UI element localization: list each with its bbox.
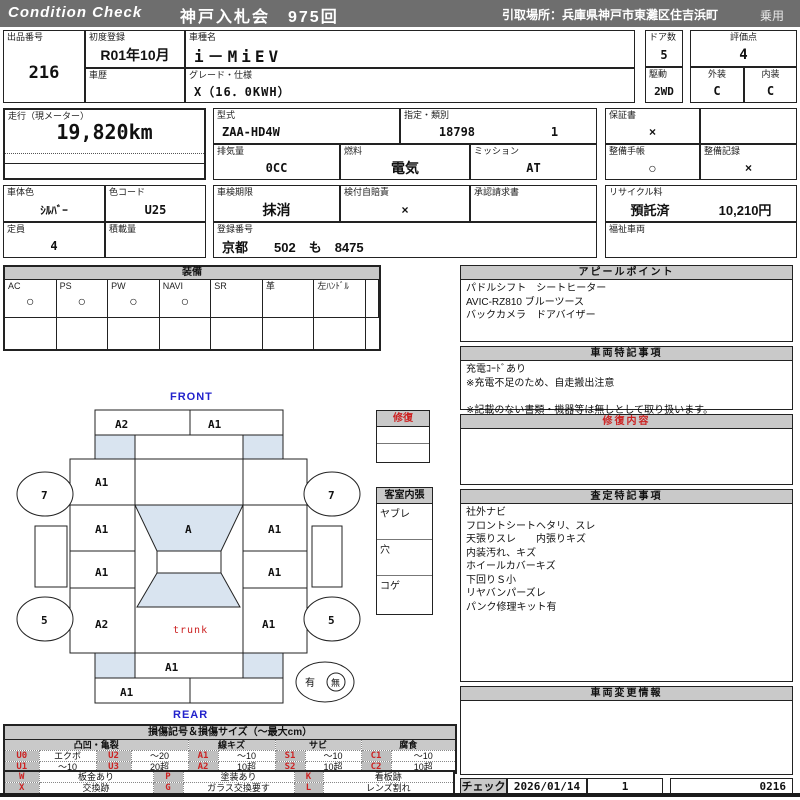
transmission-value: AT — [471, 157, 596, 179]
exterior-grade-cell: 外装 C — [690, 67, 744, 103]
check-count-cell: 1 — [587, 778, 663, 794]
equipment-cell-sr: SR — [211, 280, 263, 318]
appeal-points-text: パドルシフト シートヒーター AVIC-RZ810 ブルーツース バックカメラ … — [461, 280, 792, 341]
maintenance-record-value: × — [701, 157, 796, 179]
equipment-label: NAVI — [160, 280, 211, 292]
legend-desc: 塗装あり — [183, 771, 294, 783]
equipment-title: 装備 — [5, 267, 379, 280]
registration-number-value: 京都 502 も 8475 — [214, 235, 596, 257]
drive-value: 2WD — [646, 80, 682, 102]
appeal-points-panel: アピールポイント パドルシフト シートヒーター AVIC-RZ810 ブルーツー… — [460, 265, 793, 342]
interior-grade-label: 内装 — [745, 68, 796, 80]
legend-code: P — [153, 771, 183, 783]
first-registration-value: R01年10月 — [86, 43, 184, 67]
class-sub-number: 1 — [551, 125, 558, 139]
recycle-fee-cell: リサイクル料 預託済 10,210円 — [605, 185, 797, 222]
registration-number-cell: 登録番号 京都 502 も 8475 — [213, 222, 597, 258]
repair-detail-panel: 修復内容 — [460, 414, 793, 485]
equipment-cell-extra — [366, 280, 379, 318]
zone-label-rear-bumper-left: A1 — [120, 686, 134, 699]
legend-desc: 板金あり — [39, 771, 153, 783]
legend-code: C1 — [361, 751, 391, 762]
equipment-value: ○ — [5, 292, 56, 310]
zone-label-windshield: A — [185, 523, 192, 536]
blank-cell — [700, 108, 797, 144]
brand-logo: Condition Check — [8, 4, 142, 21]
load-capacity-cell: 積載量 — [105, 222, 206, 258]
mileage-cell: 走行（現メーター） 19,820km — [3, 108, 206, 180]
check-label-cell: チェック — [460, 778, 507, 794]
exterior-grade-label: 外装 — [691, 68, 743, 80]
appeal-points-title: アピールポイント — [461, 266, 792, 280]
zone-label-left-fender: A1 — [95, 476, 109, 489]
legend-title: 損傷記号＆損傷サイズ（～最大cm） — [4, 725, 456, 740]
model-name-cell: 車種名 i－MiEV — [185, 30, 635, 68]
capacity-value: 4 — [4, 235, 104, 257]
equipment-cell-lhd: 左ﾊﾝﾄﾞﾙ — [314, 280, 366, 318]
wheel-grade-rear-left: 5 — [41, 614, 48, 627]
model-name-value: i－MiEV — [186, 43, 634, 67]
use-type: 乗用 — [760, 7, 784, 24]
transmission-label: ミッション — [471, 145, 596, 157]
warranty-label: 保証書 — [606, 109, 699, 121]
grade-value: X（16．0KWH） — [186, 81, 634, 102]
model-code-value: ZAA-HD4W — [214, 121, 399, 143]
drive-label: 駆動 — [646, 68, 682, 80]
change-info-panel: 車両変更情報 — [460, 686, 793, 775]
wheel-grade-rear-right: 5 — [328, 614, 335, 627]
transmission-cell: ミッション AT — [470, 144, 597, 180]
legend-desc: ～10 — [218, 751, 275, 762]
rear-panel-zone — [135, 653, 243, 678]
insurance-cell: 検付自賠責 × — [340, 185, 470, 222]
score-value: 4 — [691, 43, 796, 66]
model-code-label: 型式 — [214, 109, 399, 121]
zone-label-left-quarter: A2 — [95, 618, 108, 631]
capacity-label: 定員 — [4, 223, 104, 235]
equipment-cell-ac: AC ○ — [5, 280, 57, 318]
load-capacity-label: 積載量 — [106, 223, 205, 235]
auction-title: 神戸入札会 975回 — [180, 3, 339, 27]
repair-detail-title: 修復内容 — [461, 415, 792, 429]
zone-label-right-front-door: A1 — [268, 523, 282, 536]
vehicle-notes-title: 車両特記事項 — [461, 347, 792, 361]
lot-number-cell: 出品番号 216 — [3, 30, 85, 103]
lot-number-label: 出品番号 — [4, 31, 84, 43]
registration-number-label: 登録番号 — [214, 223, 596, 235]
warranty-cell: 保証書 × — [605, 108, 700, 144]
check-date-cell: 2026/01/14 — [507, 778, 587, 794]
warranty-value: × — [606, 121, 699, 143]
spare-present-label: 有 — [305, 676, 315, 689]
hood-corner-left — [95, 435, 135, 459]
displacement-label: 排気量 — [214, 145, 339, 157]
rear-corner-right — [243, 653, 283, 678]
legend-desc: エクボ — [39, 751, 96, 762]
legend-group-dents: 凸凹・亀裂 — [4, 740, 188, 751]
left-sill-strip — [35, 526, 67, 587]
legend-code: S1 — [275, 751, 305, 762]
recycle-status: 預託済 — [631, 200, 670, 219]
color-code-label: 色コード — [106, 186, 205, 198]
rear-corner-left — [95, 653, 135, 678]
car-history-cell: 車歴 — [85, 68, 185, 103]
maintenance-record-cell: 整備記録 × — [700, 144, 797, 180]
legend-desc: ～20 — [131, 751, 188, 762]
equipment-cell-leather: 革 — [263, 280, 315, 318]
grade-cell: グレード・仕様 X（16．0KWH） — [185, 68, 635, 103]
equipment-value: ○ — [160, 292, 211, 310]
assessment-notes-panel: 査定特記事項 社外ナビ フロントシートヘタリ、スレ 天張りスレ 内張りキズ 内装… — [460, 489, 793, 682]
inspection-expiry-cell: 車検期限 抹消 — [213, 185, 340, 222]
first-registration-label: 初度登録 — [86, 31, 184, 43]
assessment-notes-title: 査定特記事項 — [461, 490, 792, 504]
score-cell: 評価点 4 — [690, 30, 797, 67]
rear-direction-label: REAR — [173, 709, 208, 721]
equipment-label: PS — [57, 280, 108, 292]
displacement-cell: 排気量 0CC — [213, 144, 340, 180]
score-label: 評価点 — [691, 31, 796, 43]
lot-number-value: 216 — [4, 43, 84, 102]
model-code-cell: 型式 ZAA-HD4W — [213, 108, 400, 144]
welfare-vehicle-value — [606, 235, 796, 257]
equipment-value: ○ — [108, 292, 159, 310]
damage-legend-table: 損傷記号＆損傷サイズ（～最大cm） 凸凹・亀裂 線キズ サビ 腐食 U0エクボ … — [3, 724, 457, 774]
maintenance-book-cell: 整備手帳 ○ — [605, 144, 700, 180]
inspection-expiry-value: 抹消 — [214, 198, 339, 221]
class-cell: 指定・類別 18798 1 — [400, 108, 597, 144]
equipment-cell-navi: NAVI ○ — [160, 280, 212, 318]
hood-corner-right — [243, 435, 283, 459]
legend-desc: ～10 — [391, 751, 456, 762]
legend-group-corrosion: 腐食 — [361, 740, 456, 751]
spare-absent-label: 無 — [331, 677, 340, 688]
legend-desc: ～10 — [305, 751, 361, 762]
inspection-expiry-label: 車検期限 — [214, 186, 339, 198]
equipment-label: 革 — [263, 280, 314, 292]
front-direction-label: FRONT — [170, 391, 213, 403]
legend-code: W — [4, 771, 39, 783]
fuel-label: 燃料 — [341, 145, 469, 157]
welfare-vehicle-cell: 福祉車両 — [605, 222, 797, 258]
mileage-divider — [5, 154, 204, 164]
legend-desc: 看板跡 — [323, 771, 454, 783]
exterior-grade-value: C — [691, 80, 743, 102]
grade-label: グレード・仕様 — [186, 69, 634, 81]
displacement-value: 0CC — [214, 157, 339, 179]
model-name-label: 車種名 — [186, 31, 634, 43]
capacity-cell: 定員 4 — [3, 222, 105, 258]
equipment-value: ○ — [57, 292, 108, 310]
vehicle-notes-panel: 車両特記事項 充電ｺｰﾄﾞあり ※充電不足のため、自走搬出注意 ※記載のない書類… — [460, 346, 793, 410]
interior-grade-value: C — [745, 80, 796, 102]
doors-cell: ドア数 5 — [645, 30, 683, 67]
load-capacity-value — [106, 235, 205, 257]
right-sill-strip — [312, 526, 342, 587]
color-code-cell: 色コード U25 — [105, 185, 206, 222]
welfare-vehicle-label: 福祉車両 — [606, 223, 796, 235]
equipment-cell-pw: PW ○ — [108, 280, 160, 318]
damage-legend-table-2: W板金あり P塗装あり K看板跡 X交換跡 Gガラス交換要す Lレンズ割れ — [3, 770, 455, 795]
zone-label-rear-panel: A1 — [165, 661, 179, 674]
insurance-value: × — [341, 198, 469, 221]
equipment-label: 左ﾊﾝﾄﾞﾙ — [314, 280, 365, 292]
car-damage-diagram: FRONT A2 A1 A1 A1 A A1 A1 A1 A2 A1 t — [10, 385, 430, 725]
zone-label-left-front-door: A1 — [95, 523, 109, 536]
zone-label-right-quarter: A1 — [262, 618, 276, 631]
maintenance-book-label: 整備手帳 — [606, 145, 699, 157]
equipment-label: AC — [5, 280, 56, 292]
equipment-label: SR — [211, 280, 262, 292]
first-registration-cell: 初度登録 R01年10月 — [85, 30, 185, 68]
maintenance-book-value: ○ — [606, 157, 699, 179]
approval-request-cell: 承認請求書 — [470, 185, 597, 222]
title-bar: Condition Check 神戸入札会 975回 引取場所：兵庫県神戸市東灘… — [0, 0, 800, 27]
wheel-grade-front-right: 7 — [328, 489, 335, 502]
vehicle-notes-text: 充電ｺｰﾄﾞあり ※充電不足のため、自走搬出注意 ※記載のない書類・機器等は無し… — [461, 361, 792, 419]
bottom-divider-bar — [0, 793, 800, 797]
legend-code: A1 — [188, 751, 218, 762]
approval-request-label: 承認請求書 — [471, 186, 596, 198]
equipment-cell-ps: PS ○ — [57, 280, 109, 318]
insurance-label: 検付自賠責 — [341, 186, 469, 198]
doors-label: ドア数 — [646, 31, 682, 43]
zone-label-front-bumper-right: A1 — [208, 418, 222, 431]
body-color-cell: 車体色 ｼﾙﾊﾞｰ — [3, 185, 105, 222]
repair-detail-text — [461, 429, 792, 484]
change-info-text — [461, 701, 792, 774]
doors-value: 5 — [646, 43, 682, 66]
body-color-value: ｼﾙﾊﾞｰ — [4, 198, 104, 221]
fuel-value: 電気 — [341, 157, 469, 179]
class-number: 18798 — [439, 125, 475, 139]
equipment-table: 装備 AC ○ PS ○ PW ○ NAVI ○ SR 革 — [3, 265, 381, 351]
auction-sheet: Condition Check 神戸入札会 975回 引取場所：兵庫県神戸市東灘… — [0, 0, 800, 800]
legend-code: K — [294, 771, 323, 783]
change-info-title: 車両変更情報 — [461, 687, 792, 701]
mileage-value: 19,820km — [5, 120, 204, 144]
zone-label-front-bumper-left: A2 — [115, 418, 128, 431]
drive-cell: 駆動 2WD — [645, 67, 683, 103]
legend-group-rust: サビ — [275, 740, 361, 751]
pickup-location: 引取場所：兵庫県神戸市東灘区住吉浜町 — [502, 6, 718, 23]
zone-label-right-rear-door: A1 — [268, 566, 282, 579]
recycle-fee-value: 10,210円 — [719, 200, 772, 219]
equipment-label: PW — [108, 280, 159, 292]
class-label: 指定・類別 — [401, 109, 596, 121]
maintenance-record-label: 整備記録 — [701, 145, 796, 157]
car-history-value — [86, 81, 184, 102]
zone-label-trunk: trunk — [173, 625, 208, 636]
wheel-grade-front-left: 7 — [41, 489, 48, 502]
legend-code: U0 — [4, 751, 39, 762]
check-code-cell: 0216 — [670, 778, 793, 794]
assessment-notes-text: 社外ナビ フロントシートヘタリ、スレ 天張りスレ 内張りキズ 内装汚れ、キズ ホ… — [461, 504, 792, 681]
zone-label-left-rear-door: A1 — [95, 566, 109, 579]
legend-group-scratches: 線キズ — [188, 740, 275, 751]
approval-request-value — [471, 198, 596, 221]
car-history-label: 車歴 — [86, 69, 184, 81]
color-code-value: U25 — [106, 198, 205, 221]
body-color-label: 車体色 — [4, 186, 104, 198]
fuel-cell: 燃料 電気 — [340, 144, 470, 180]
legend-code: U2 — [96, 751, 131, 762]
interior-grade-cell: 内装 C — [744, 67, 797, 103]
recycle-fee-label: リサイクル料 — [606, 186, 796, 198]
